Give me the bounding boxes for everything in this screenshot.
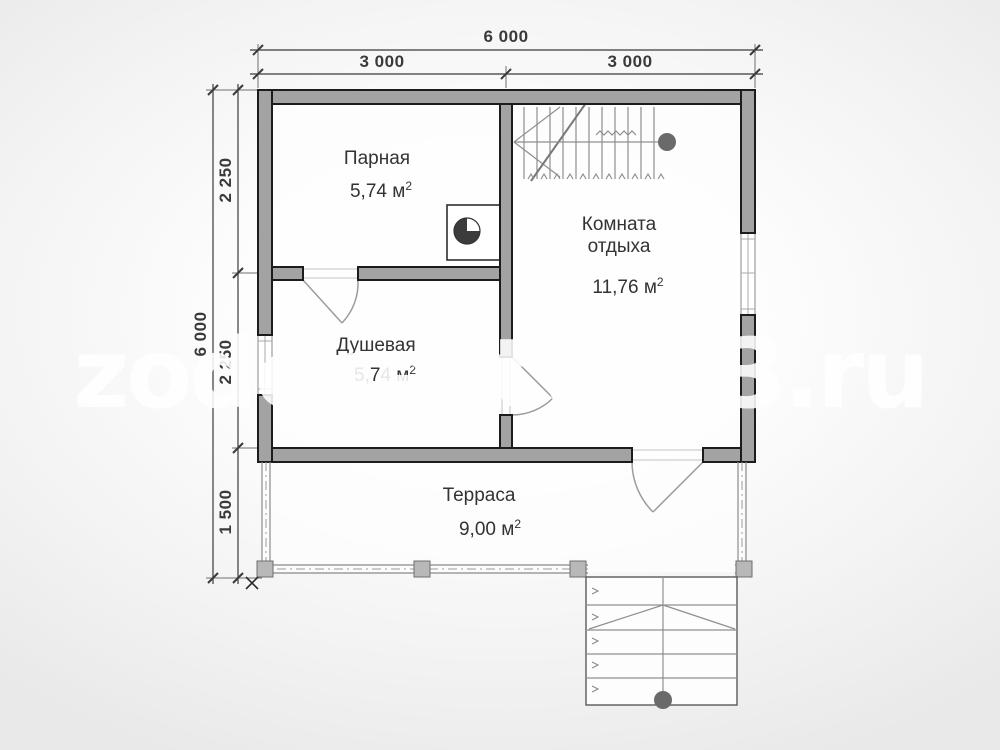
wall-top — [258, 90, 755, 104]
room-area-terrace: 9,00 м2 — [459, 517, 521, 541]
wall-interior-horizontal-left — [272, 267, 303, 280]
room-label-rest: Комната отдыха — [558, 214, 680, 258]
wall-interior-horizontal-right — [358, 267, 500, 280]
entrance-stairs-symbol — [586, 577, 737, 709]
wall-left-upper — [258, 90, 272, 335]
dimension-lines-top — [250, 44, 763, 88]
railing-post — [570, 561, 586, 577]
railing-post — [257, 561, 273, 577]
newel-post-circle — [658, 133, 676, 151]
dim-top-total: 6 000 — [483, 27, 528, 47]
window-restroom-right — [741, 233, 755, 315]
watermark-text: zodchestvo53.ru — [73, 318, 926, 430]
room-area-rest: 11,76 м2 — [592, 275, 663, 299]
room-label-terrace: Терраса — [443, 485, 516, 507]
floor-plan-canvas: 6 000 3 000 3 000 6 000 2 250 2 250 1 50… — [0, 0, 1000, 750]
dim-left-lower: 1 500 — [216, 489, 236, 534]
railing-post — [736, 561, 752, 577]
corner-x-marker-icon — [246, 577, 258, 589]
room-area-steam: 5,74 м2 — [350, 179, 412, 203]
dim-top-left-half: 3 000 — [359, 52, 404, 72]
wall-right-upper — [741, 90, 755, 233]
stove-icon — [447, 205, 502, 260]
dim-top-right-half: 3 000 — [607, 52, 652, 72]
dim-left-upper: 2 250 — [216, 157, 236, 202]
wall-bottom-left-segment — [258, 448, 632, 462]
room-label-steam: Парная — [344, 148, 410, 170]
railing-post — [414, 561, 430, 577]
newel-post-circle — [654, 691, 672, 709]
